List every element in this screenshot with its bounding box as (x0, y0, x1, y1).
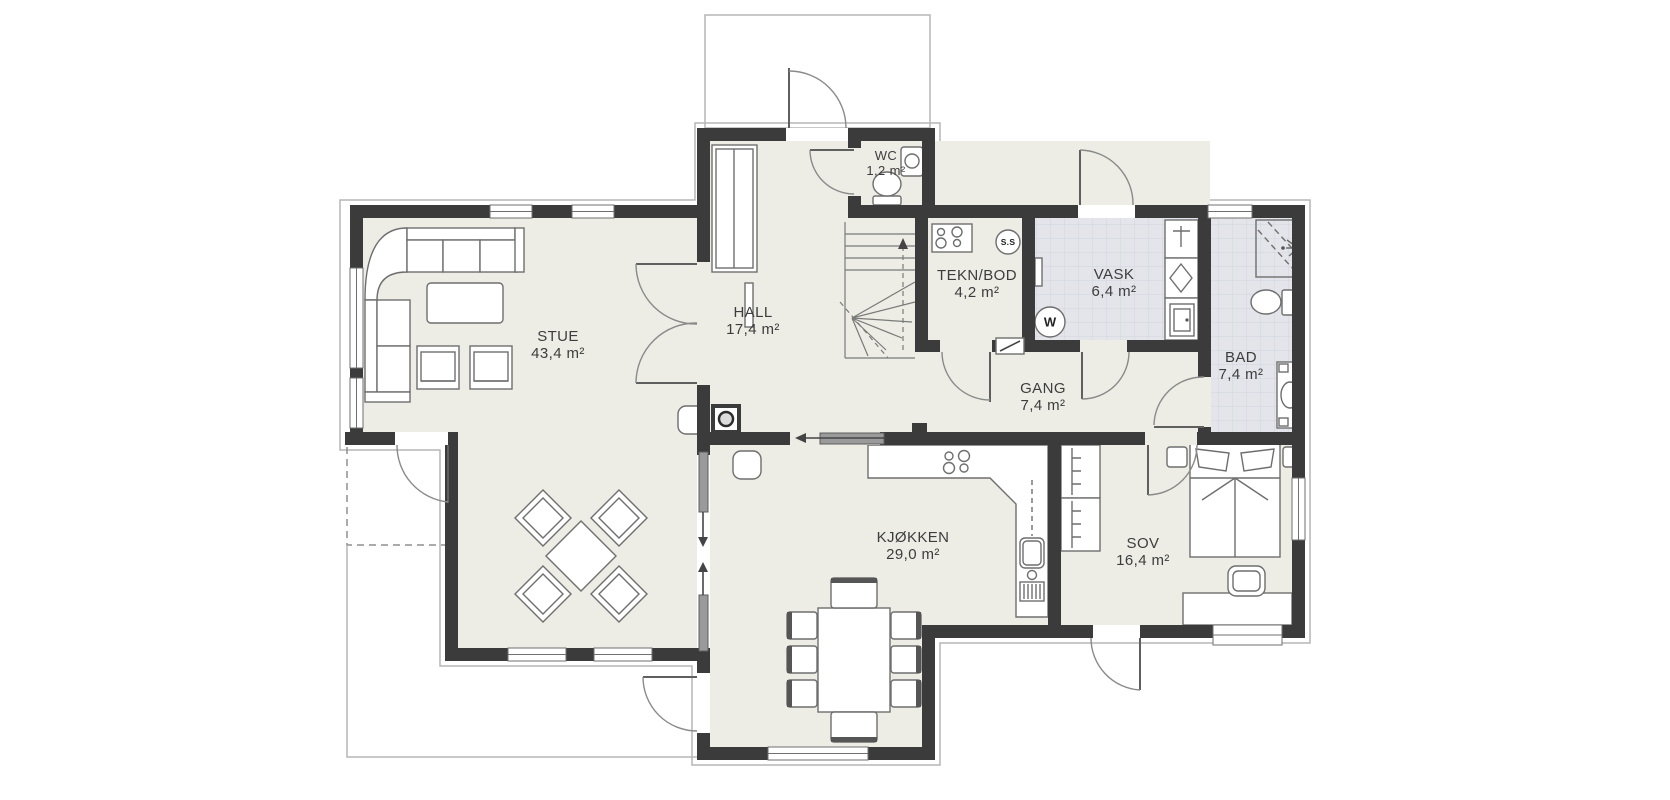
wardrobes (1061, 445, 1100, 551)
room-area: 7,4 m² (1020, 397, 1066, 414)
bad-toilet-icon (1251, 290, 1294, 315)
room-label-bad: BAD 7,4 m² (1219, 349, 1264, 383)
fireplace-icon (711, 404, 741, 434)
room-area: 1,2 m² (866, 163, 905, 178)
electrical-panel-icon (996, 338, 1024, 354)
sov-exterior-door (1091, 638, 1140, 690)
coffee-table (427, 283, 503, 323)
room-area: 29,0 m² (877, 546, 950, 563)
system-unit-label: S.S (1001, 237, 1016, 247)
dining-table (818, 608, 890, 712)
room-area: 17,4 m² (726, 321, 780, 338)
desk (1183, 593, 1292, 625)
room-area: 4,2 m² (937, 284, 1017, 301)
room-name: KJØKKEN (877, 529, 950, 546)
hall-wardrobe (712, 145, 757, 272)
room-area: 16,4 m² (1116, 552, 1170, 569)
room-label-gang: GANG 7,4 m² (1020, 380, 1066, 414)
bay-door (643, 677, 697, 731)
room-name: TEKN/BOD (937, 267, 1017, 284)
floor-plan-canvas: STUE 43,4 m² HALL 17,4 m² WC 1,2 m² TEKN… (0, 0, 1670, 800)
desk-chair (1228, 566, 1265, 596)
room-label-teknbod: TEKN/BOD 4,2 m² (937, 267, 1017, 301)
room-label-vask: VASK 6,4 m² (1092, 266, 1137, 300)
room-name: VASK (1092, 266, 1137, 283)
bed (1190, 443, 1280, 557)
room-name: HALL (726, 304, 780, 321)
room-area: 43,4 m² (531, 345, 585, 362)
room-area: 6,4 m² (1092, 283, 1137, 300)
room-area: 7,4 m² (1219, 366, 1264, 383)
room-name: BAD (1219, 349, 1264, 366)
tech-unit-icon (932, 224, 972, 252)
room-label-kjokken: KJØKKEN 29,0 m² (877, 529, 950, 563)
porch-outline (705, 15, 930, 128)
entrance-door (789, 68, 846, 128)
room-label-sov: SOV 16,4 m² (1116, 535, 1170, 569)
room-label-wc: WC 1,2 m² (866, 148, 905, 178)
room-name: SOV (1116, 535, 1170, 552)
room-name: WC (866, 148, 905, 163)
room-name: GANG (1020, 380, 1066, 397)
room-label-hall: HALL 17,4 m² (726, 304, 780, 338)
terrace-outline (347, 447, 445, 545)
room-name: STUE (531, 328, 585, 345)
washing-machine-label: W (1044, 315, 1056, 330)
floor-plan-svg (0, 0, 1670, 800)
room-label-stue: STUE 43,4 m² (531, 328, 585, 362)
